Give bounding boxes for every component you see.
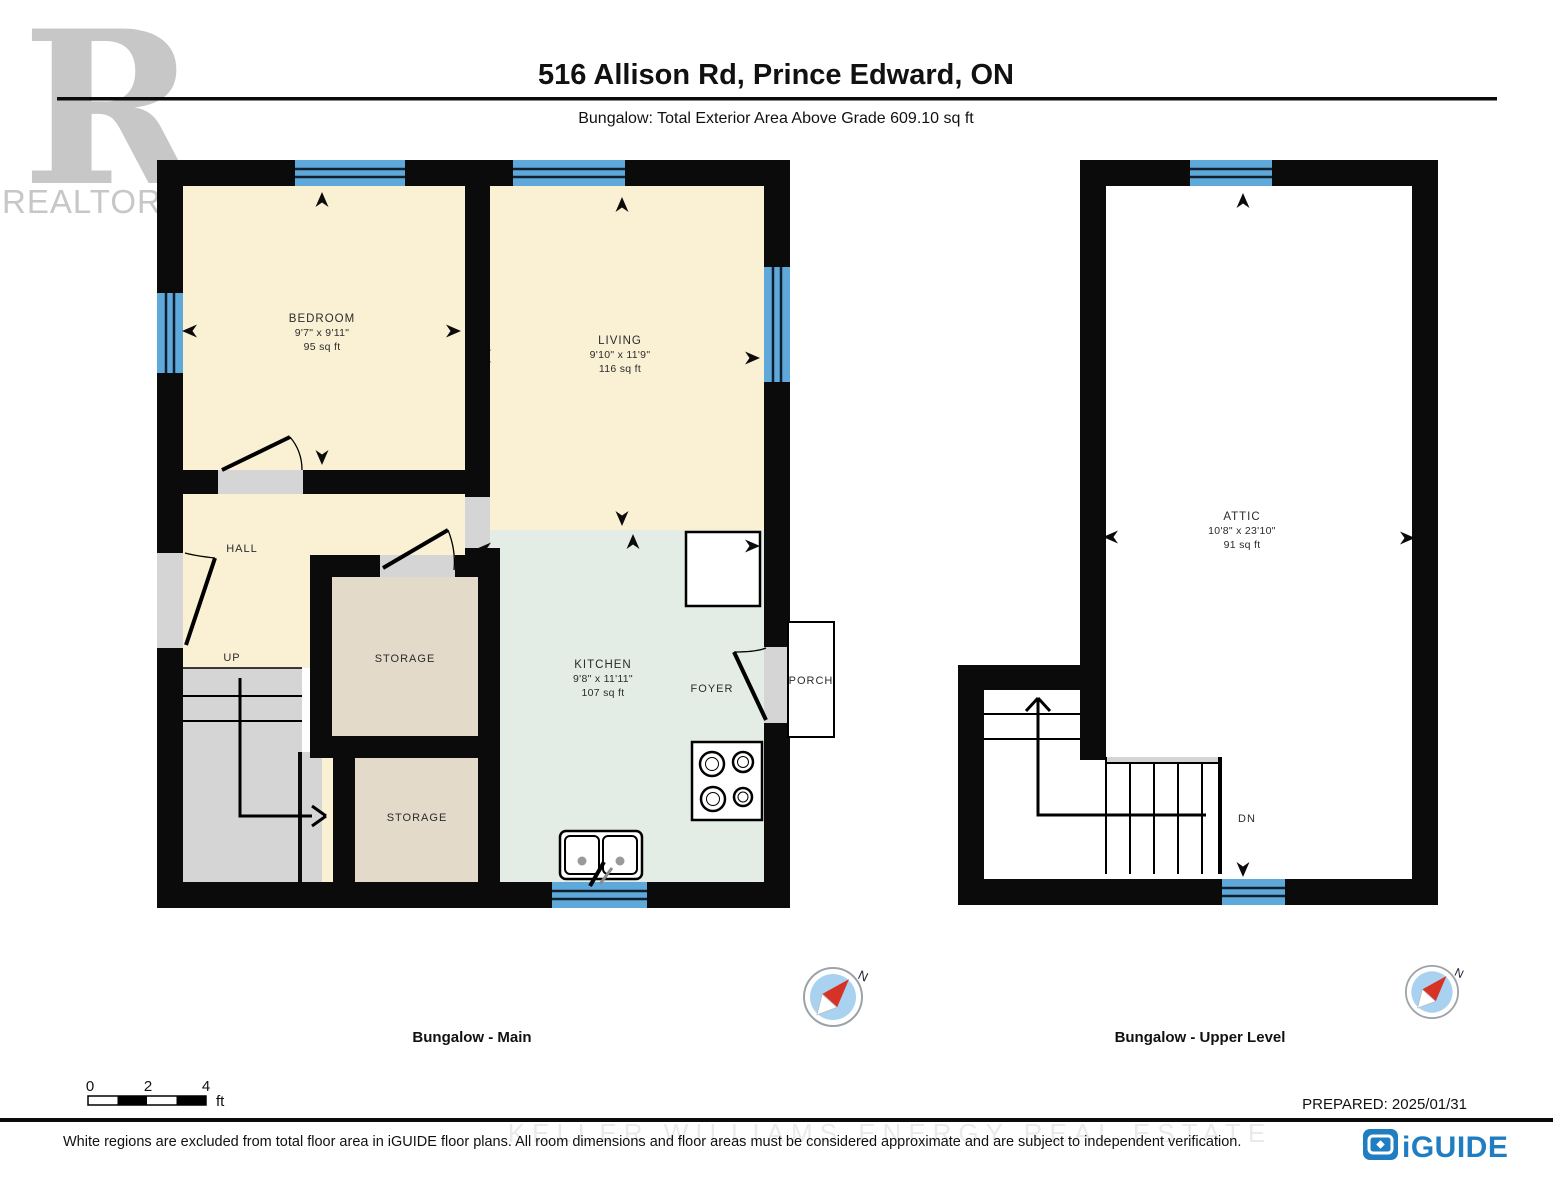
attic-dims: 10'8" x 23'10" (1208, 525, 1276, 537)
prepared-date: PREPARED: 2025/01/31 (1302, 1096, 1467, 1113)
iguide-logo: iGUIDE (1363, 1129, 1508, 1164)
main-plan-caption: Bungalow - Main (412, 1029, 531, 1046)
stove (692, 742, 762, 820)
storage2-label: STORAGE (387, 812, 448, 824)
upper-floor-plan: ATTIC 10'8" x 23'10" 91 sq ft DN (958, 160, 1438, 905)
scale-bar: 0 2 4 ft (86, 1078, 225, 1110)
foyer-label: FOYER (691, 683, 734, 695)
scale-tick-2: 2 (144, 1078, 152, 1095)
scale-tick-4: 4 (202, 1078, 210, 1095)
upper-plan-caption: Bungalow - Upper Level (1115, 1029, 1286, 1046)
storage1-label: STORAGE (375, 653, 436, 665)
living-area: 116 sq ft (599, 363, 641, 375)
hall-label: HALL (226, 543, 258, 555)
dn-label: DN (1238, 813, 1256, 825)
living-dims: 9'10" x 11'9" (590, 349, 651, 361)
hall-passage-opening (465, 497, 490, 548)
scale-tick-0: 0 (86, 1078, 94, 1095)
header: 516 Allison Rd, Prince Edward, ON Bungal… (57, 59, 1497, 127)
window (1222, 879, 1285, 905)
sink (560, 831, 642, 886)
main-floor-plan: BEDROOM 9'7" x 9'11" 95 sq ft LIVING 9'1… (157, 160, 834, 908)
bedroom-area: 95 sq ft (304, 341, 341, 353)
window (552, 882, 647, 908)
porch-label: PORCH (789, 675, 834, 687)
compass-icon: N (1406, 966, 1466, 1018)
stairs-fill (183, 668, 302, 882)
kitchen-label: KITCHEN (574, 659, 631, 671)
scale-unit: ft (216, 1093, 225, 1110)
window (764, 267, 790, 382)
floor-plan-canvas: R REALTOR® 516 Allison Rd, Prince Edward… (0, 0, 1553, 1200)
porch-door-opening (764, 647, 790, 723)
entry-door-opening (157, 553, 183, 648)
header-divider (57, 97, 1497, 101)
up-label: UP (223, 652, 240, 664)
attic-area: 91 sq ft (1224, 539, 1261, 551)
living-label: LIVING (598, 335, 642, 347)
page-title: 516 Allison Rd, Prince Edward, ON (538, 59, 1014, 91)
window (513, 160, 625, 186)
kitchen-dims: 9'8" x 11'11" (573, 673, 633, 685)
window (295, 160, 405, 186)
disclaimer-text: White regions are excluded from total fl… (63, 1134, 1241, 1150)
bedroom-dims: 9'7" x 9'11" (295, 327, 350, 339)
floor-plan-page: R REALTOR® 516 Allison Rd, Prince Edward… (0, 0, 1553, 1200)
window (1190, 160, 1272, 186)
bedroom-door-opening (218, 470, 303, 494)
attic-label: ATTIC (1223, 511, 1260, 523)
storage-door-opening (380, 555, 455, 577)
iguide-logo-text: iGUIDE (1402, 1131, 1508, 1164)
window (157, 293, 183, 373)
bedroom-label: BEDROOM (289, 313, 355, 325)
compass-icon: N (804, 967, 871, 1026)
page-subtitle: Bungalow: Total Exterior Area Above Grad… (578, 110, 974, 127)
kitchen-area: 107 sq ft (582, 687, 625, 699)
